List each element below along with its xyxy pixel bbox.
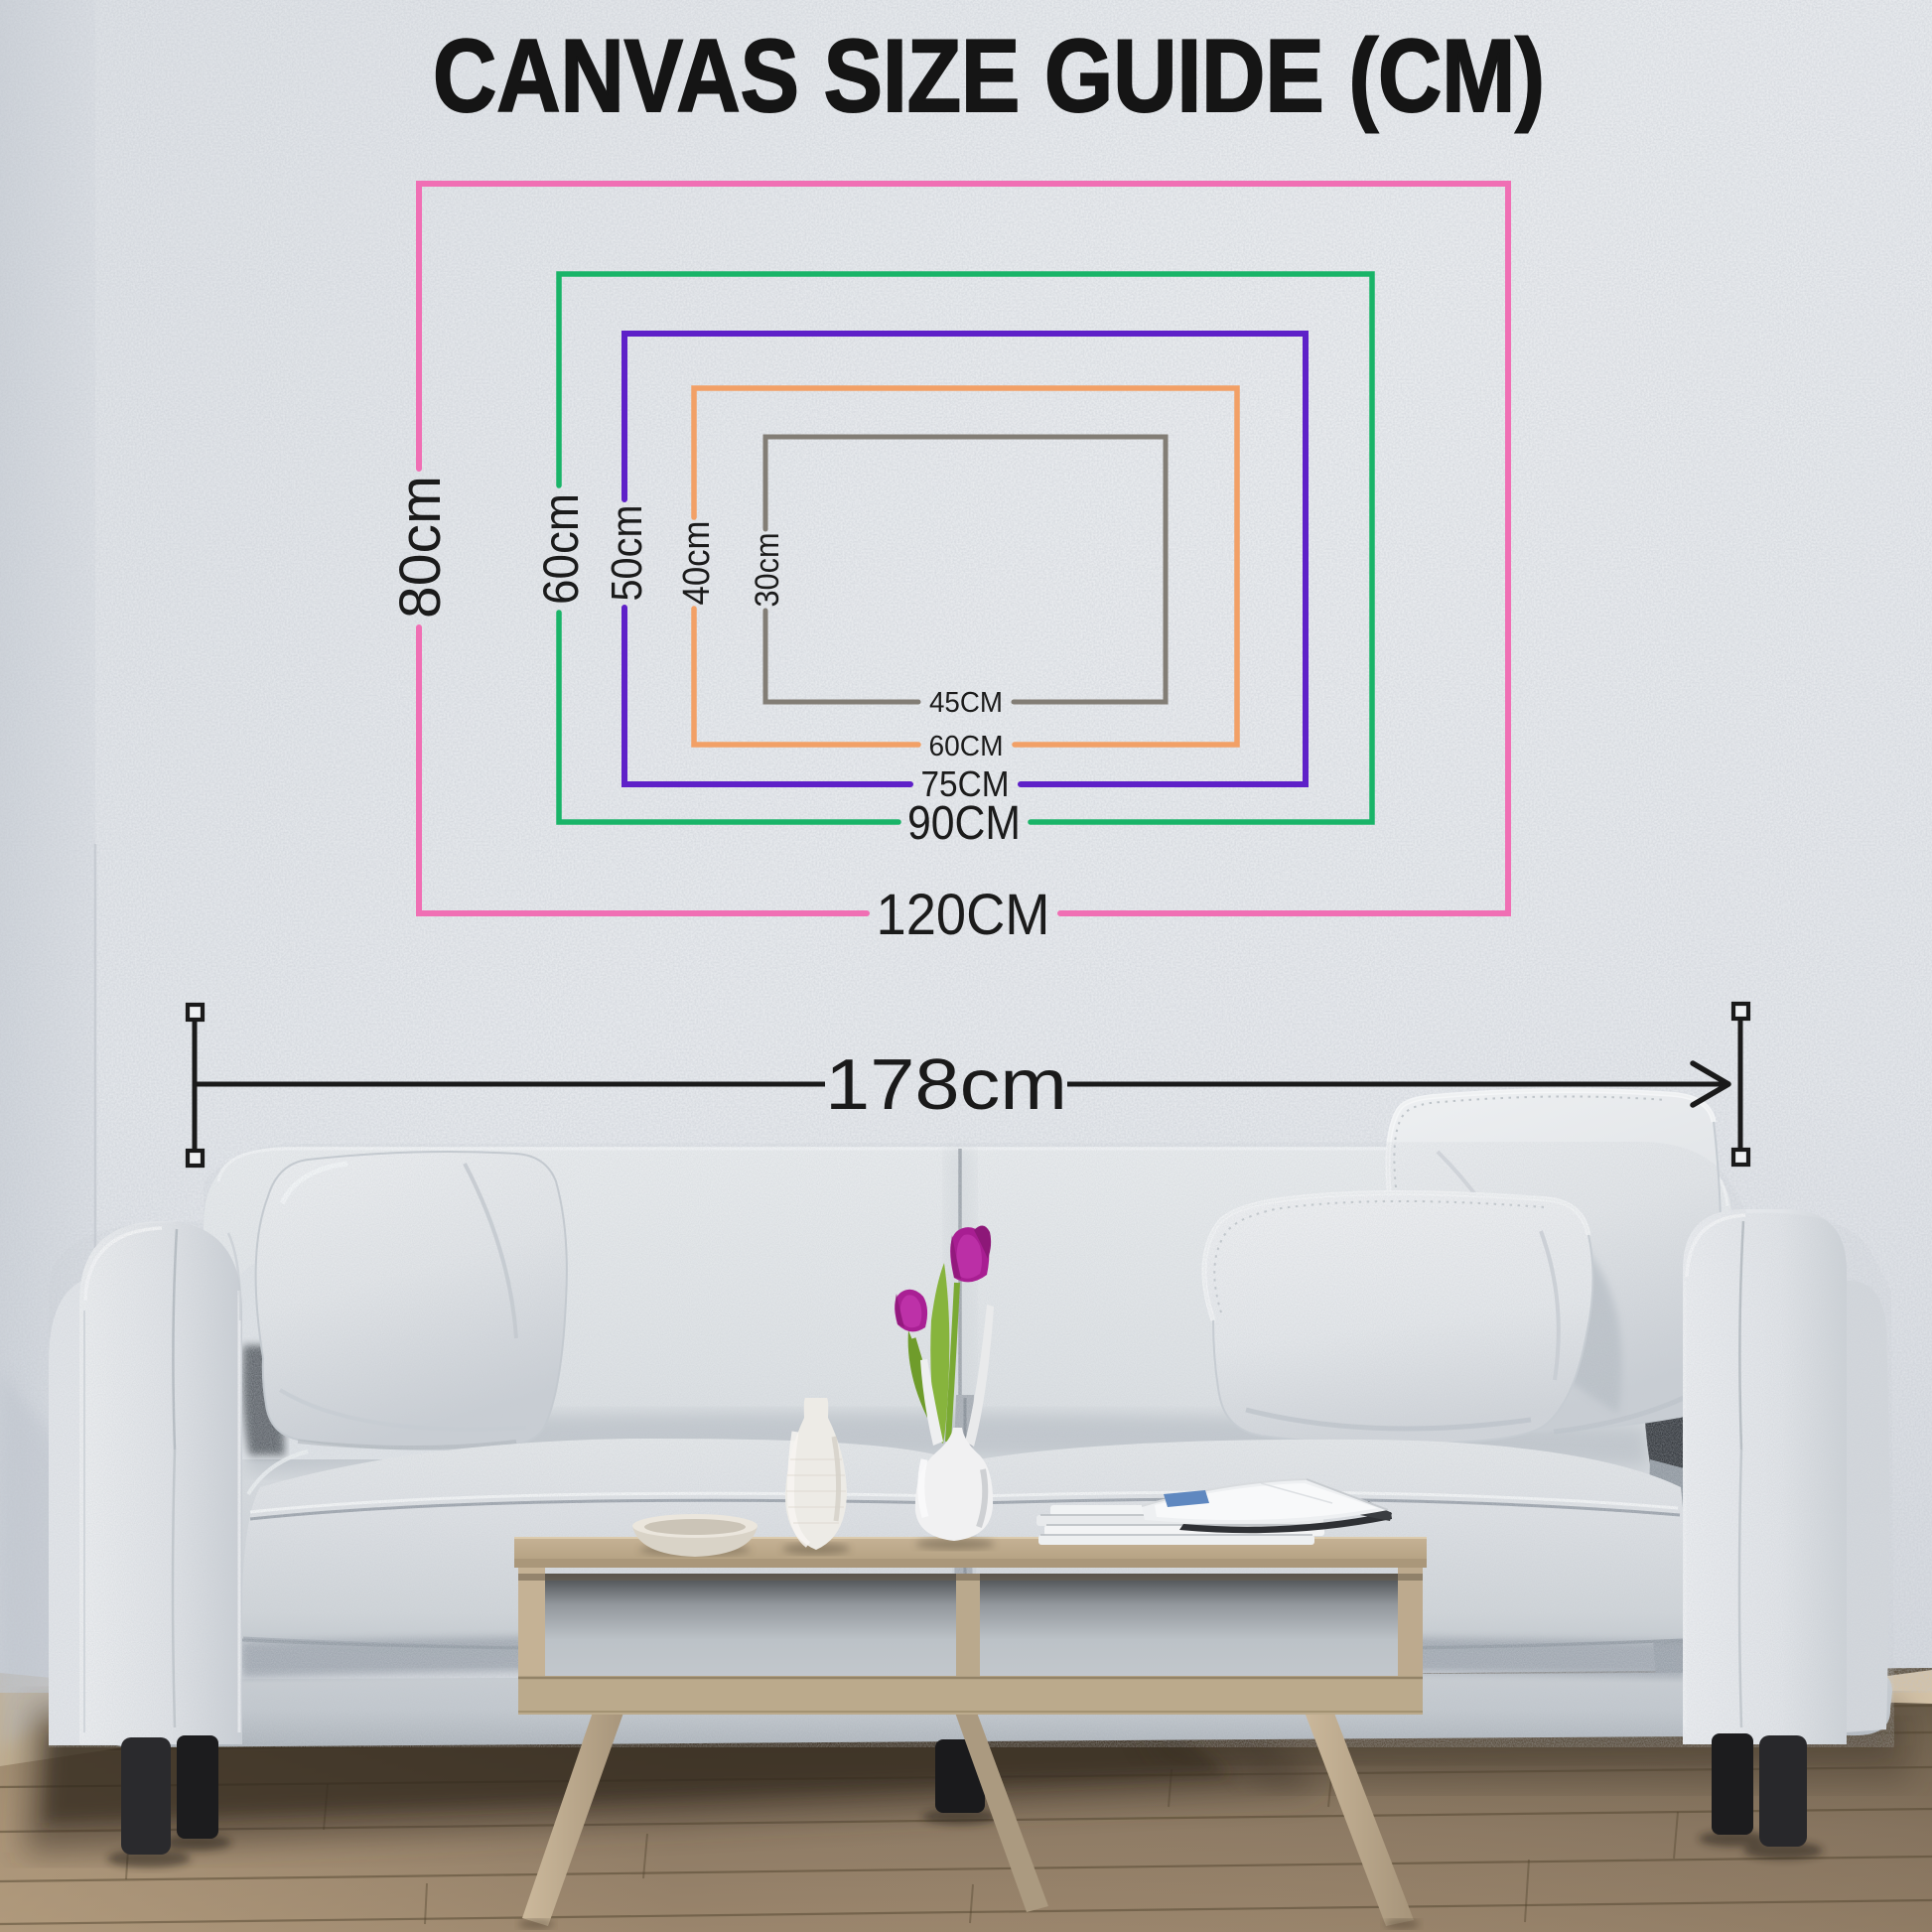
svg-text:60CM: 60CM [929,731,1004,762]
svg-text:50cm: 50cm [603,505,651,602]
svg-text:120CM: 120CM [877,883,1050,947]
svg-text:60cm: 60cm [533,493,589,605]
svg-text:80cm: 80cm [388,476,453,619]
svg-text:CANVAS SIZE GUIDE (CM): CANVAS SIZE GUIDE (CM) [433,19,1545,134]
svg-text:90CM: 90CM [907,797,1021,850]
svg-text:30cm: 30cm [749,533,786,608]
svg-text:40cm: 40cm [676,521,718,606]
svg-text:45CM: 45CM [929,687,1003,719]
svg-text:75CM: 75CM [921,763,1010,804]
svg-text:178cm: 178cm [825,1045,1067,1125]
